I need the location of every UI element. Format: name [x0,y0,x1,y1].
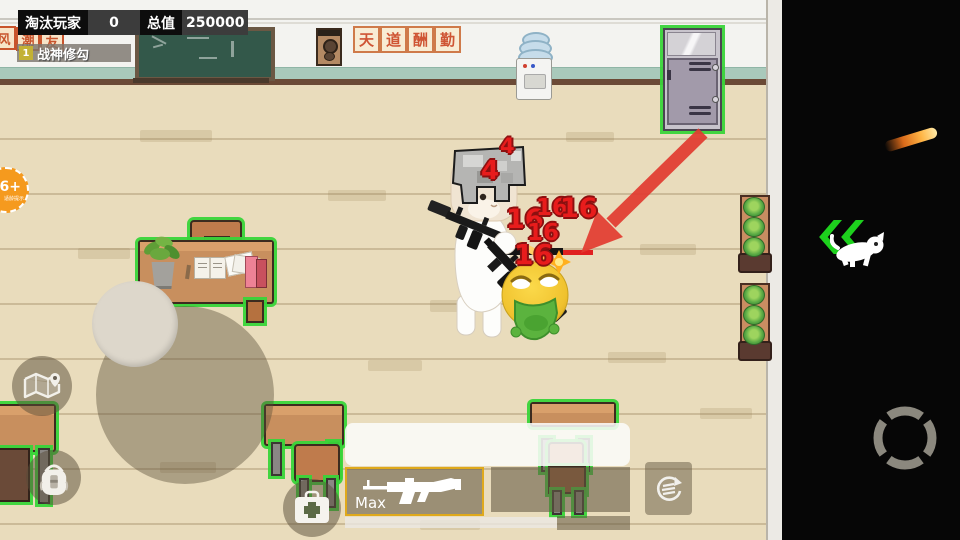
fire-ring-icon [878,411,932,465]
desk-leg [271,442,282,476]
player-name: 战神修勾 [37,44,89,63]
left-banner-char: 风 [0,26,16,50]
weapon-slot-primary[interactable]: Max [345,467,484,516]
floor-patch [78,248,130,259]
move-joystick-knob[interactable] [92,281,178,367]
eliminated-counter: 淘汰玩家 0 [18,10,140,35]
blackboard-shelf [133,78,269,83]
map-button[interactable] [12,356,72,416]
weapon-name: Max [355,494,386,512]
eliminated-label: 淘汰玩家 [18,10,88,35]
cold-tap [531,64,535,68]
rank-badge: 1 [19,46,33,60]
total-value-counter: 总值 250000 [140,10,248,35]
weapon-slot-secondary[interactable] [491,467,630,512]
sprint-animal-icon [830,230,888,268]
damage-number: 4 [481,158,499,184]
age-rating-subtext: 适龄提示 [4,195,24,202]
total-value: 250000 [182,10,248,35]
damage-number: 16 [560,195,598,222]
door-handle [667,70,671,80]
backpack-icon [38,459,70,497]
damage-number: 4 [500,136,515,157]
banner-char: 天 [353,26,380,53]
floor-patch [700,408,752,419]
student-chair [294,444,340,482]
planter [738,283,768,361]
map-icon [22,371,62,401]
hud-strip [557,516,630,530]
backpack-button[interactable] [26,450,81,505]
floor-patch [328,190,386,201]
cooler-recess [524,74,546,89]
blackboard [135,27,275,81]
eliminated-value: 0 [88,10,140,35]
planter [738,195,768,273]
medkit-button[interactable] [283,479,341,537]
door-window [667,32,716,56]
wall-speaker [316,28,342,66]
floor-patch [140,130,212,142]
medkit-icon [292,490,332,526]
floor-patch [368,360,422,371]
floor-patch [608,352,666,363]
banner-char: 道 [380,26,407,53]
banner-char: 勤 [434,26,461,53]
open-book [194,257,226,279]
game-screen: 风 潮 友 天 道 酬 勤 [0,0,960,540]
switch-weapon-button[interactable] [645,462,692,515]
student-desk [264,404,344,446]
player-nameplate: 1 战神修勾 [17,44,131,62]
switch-weapon-icon [653,473,685,505]
damage-number: 16 [514,241,553,269]
desk-leg [246,300,264,323]
book-stack [256,259,267,288]
hud-strip [345,517,557,528]
pickup-panel [345,423,630,466]
hot-tap [523,64,527,68]
fire-button[interactable] [871,404,939,472]
age-rating-text: 6+ [0,179,21,195]
banner-char: 酬 [407,26,434,53]
total-value-label: 总值 [140,10,182,35]
